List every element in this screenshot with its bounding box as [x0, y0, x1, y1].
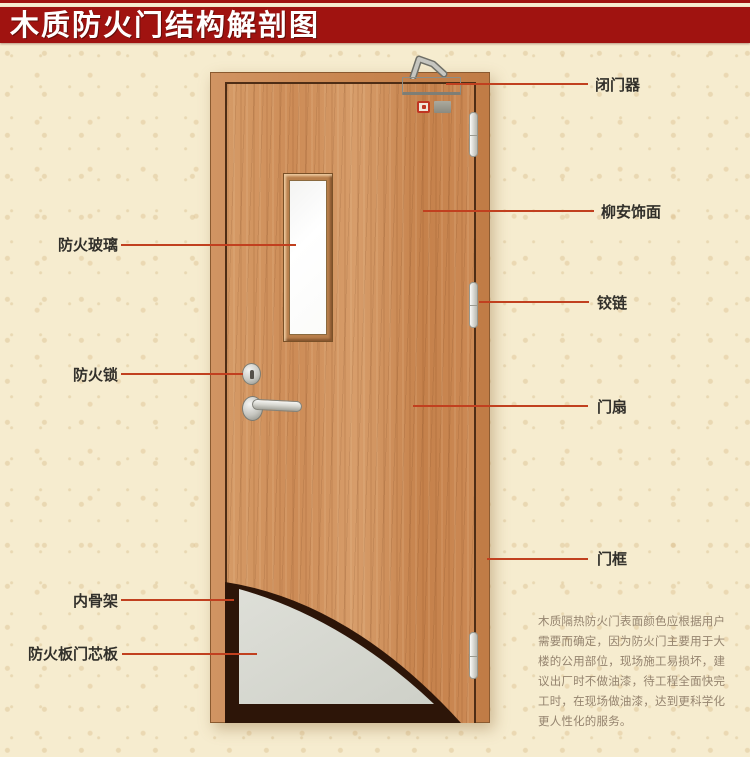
label-fire-glass: 防火玻璃: [0, 237, 118, 253]
callout-line-lauan-veneer: [423, 210, 594, 212]
alarm-indicator-icon: [417, 101, 430, 113]
fire-glass-pane: [289, 180, 327, 335]
door-magnet: [434, 101, 451, 113]
fire-core-panel: [239, 589, 434, 704]
callout-line-fire-glass: [121, 244, 296, 246]
keyhole-icon: [250, 370, 254, 379]
label-door-leaf: 门扇: [597, 399, 627, 415]
door-closer-arm-icon: [405, 52, 451, 79]
callout-line-fire-core: [122, 653, 257, 655]
description-text: 木质隔热防火门表面颜色应根据用户 需要而确定，因为防火门主要用于大 楼的公用部位…: [538, 611, 728, 731]
label-hinge: 铰链: [597, 295, 627, 311]
title-bar: 木质防火门结构解剖图: [0, 7, 750, 43]
callout-line-fire-lock: [121, 373, 243, 375]
label-door-frame: 门框: [597, 551, 627, 567]
callout-line-door-frame: [487, 558, 588, 560]
callout-line-hinge: [479, 301, 589, 303]
label-inner-skeleton: 内骨架: [0, 593, 118, 609]
page-title: 木质防火门结构解剖图: [0, 7, 320, 43]
callout-line-door-leaf: [413, 405, 588, 407]
callout-line-inner-skeleton: [121, 599, 234, 601]
label-fire-lock: 防火锁: [0, 367, 118, 383]
label-lauan-veneer: 柳安饰面: [601, 204, 661, 220]
top-accent-strip: [0, 0, 750, 3]
hinge-top: [469, 112, 478, 157]
label-fire-core: 防火板门芯板: [0, 646, 118, 662]
alarm-dot-icon: [422, 105, 426, 109]
callout-line-door-closer: [446, 83, 588, 85]
hinge-middle: [469, 282, 478, 328]
label-door-closer: 闭门器: [595, 77, 640, 93]
cutaway-section: [225, 575, 476, 723]
lock-cylinder: [242, 363, 261, 385]
door-closer-body: [402, 77, 461, 95]
